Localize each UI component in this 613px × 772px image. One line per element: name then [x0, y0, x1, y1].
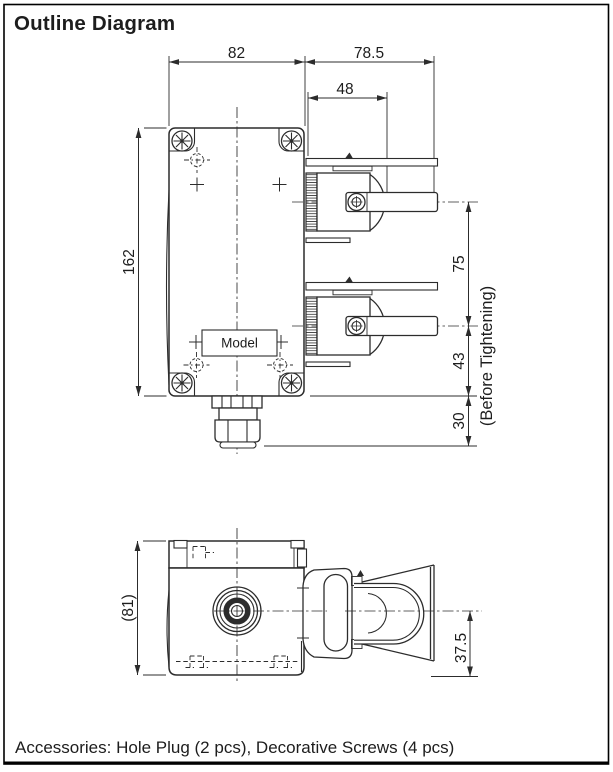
- dim-height-162: 162: [121, 249, 138, 275]
- screw-bottom-right: [282, 373, 302, 393]
- screw-top-right: [282, 131, 302, 151]
- dim-lever-37-5: 37.5: [453, 633, 470, 663]
- front-view: 82 78.5 48 162 75 43 30 (Before Tighteni…: [121, 45, 496, 454]
- outline-diagram-canvas: Outline Diagram 82 78.5 48 16: [0, 0, 613, 772]
- dim-lower-43: 43: [451, 352, 468, 369]
- dim-depth-81: (81): [120, 594, 137, 622]
- top-view: (81) 37.5: [120, 528, 482, 684]
- outline-diagram-page: Outline Diagram 82 78.5 48 16: [0, 0, 613, 772]
- cable-gland: [212, 396, 262, 448]
- dim-side-78-5: 78.5: [354, 45, 384, 62]
- dim-width-82: 82: [228, 45, 245, 62]
- before-tightening-note: (Before Tightening): [478, 286, 496, 426]
- dim-pitch-75: 75: [451, 255, 468, 272]
- lever-unit-upper: [292, 153, 478, 243]
- screw-bottom-left: [172, 373, 192, 393]
- switch-body-top: [167, 528, 304, 684]
- model-label: Model: [221, 336, 258, 351]
- screw-top-left: [172, 131, 192, 151]
- accessories-note: Accessories: Hole Plug (2 pcs), Decorati…: [15, 738, 454, 757]
- dim-gland-30: 30: [451, 412, 468, 430]
- page-title: Outline Diagram: [14, 12, 175, 35]
- dim-lever-48: 48: [336, 81, 353, 98]
